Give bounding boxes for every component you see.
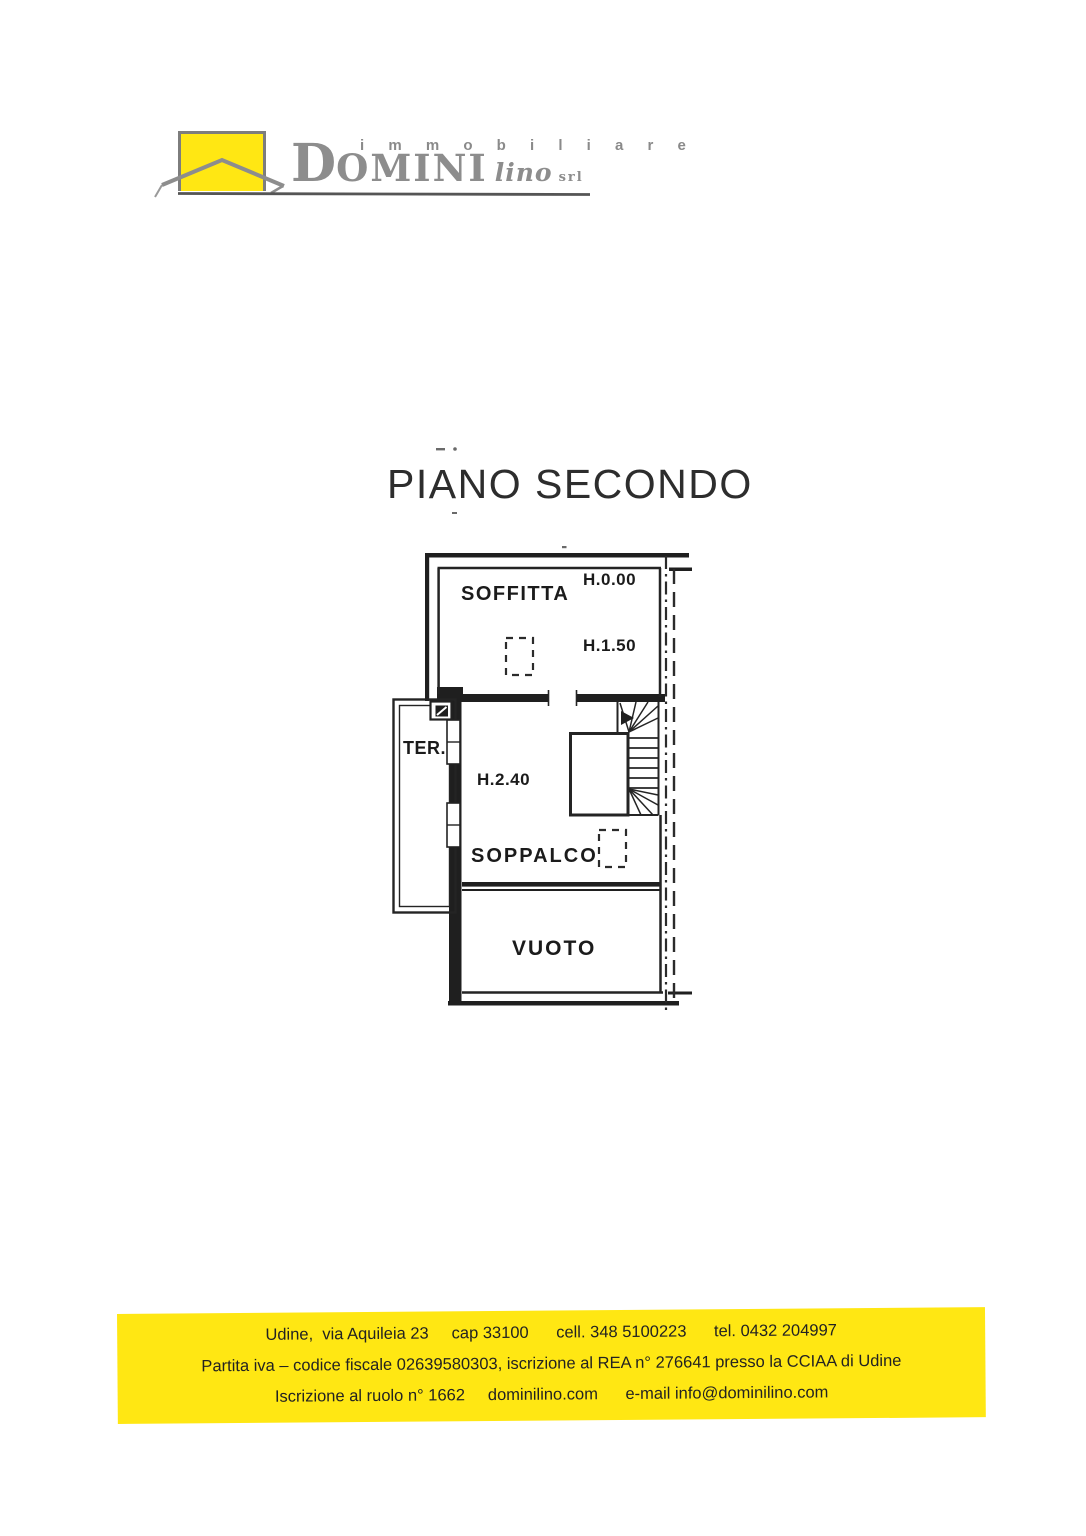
stair-direction-arrow-icon	[621, 711, 634, 725]
floor-plan-drawing	[0, 0, 1086, 1536]
height-label-h240: H.2.40	[477, 770, 530, 790]
room-label-soffitta: SOFFITTA	[461, 583, 569, 606]
scanned-document-page: i m m o b i l i a r e DOMINI lino srl PI…	[0, 0, 1086, 1536]
skylight-dashed-box-soffitta	[506, 638, 533, 675]
staircase	[571, 702, 659, 815]
skylight-dashed-box-soppalco	[599, 830, 626, 867]
logo-brand-name: lino	[495, 158, 553, 187]
logo-brand: DOMINI lino srl	[291, 140, 584, 190]
page-title: PIANO SECONDO	[387, 461, 753, 508]
logo-brand-rest: OMINI	[336, 146, 488, 190]
logo-roof-icon	[155, 160, 284, 197]
height-label-h150: H.1.50	[583, 636, 636, 656]
room-label-vuoto: VUOTO	[512, 937, 596, 961]
height-label-h000: H.0.00	[583, 570, 636, 590]
pillar-marker-icon	[431, 702, 452, 720]
logo-brand-suffix: srl	[559, 170, 584, 185]
room-label-terrace: TER.	[403, 738, 446, 759]
logo-brand-initial: D	[291, 140, 336, 188]
logo-underline	[178, 194, 590, 195]
room-label-soppalco: SOPPALCO	[471, 845, 598, 868]
